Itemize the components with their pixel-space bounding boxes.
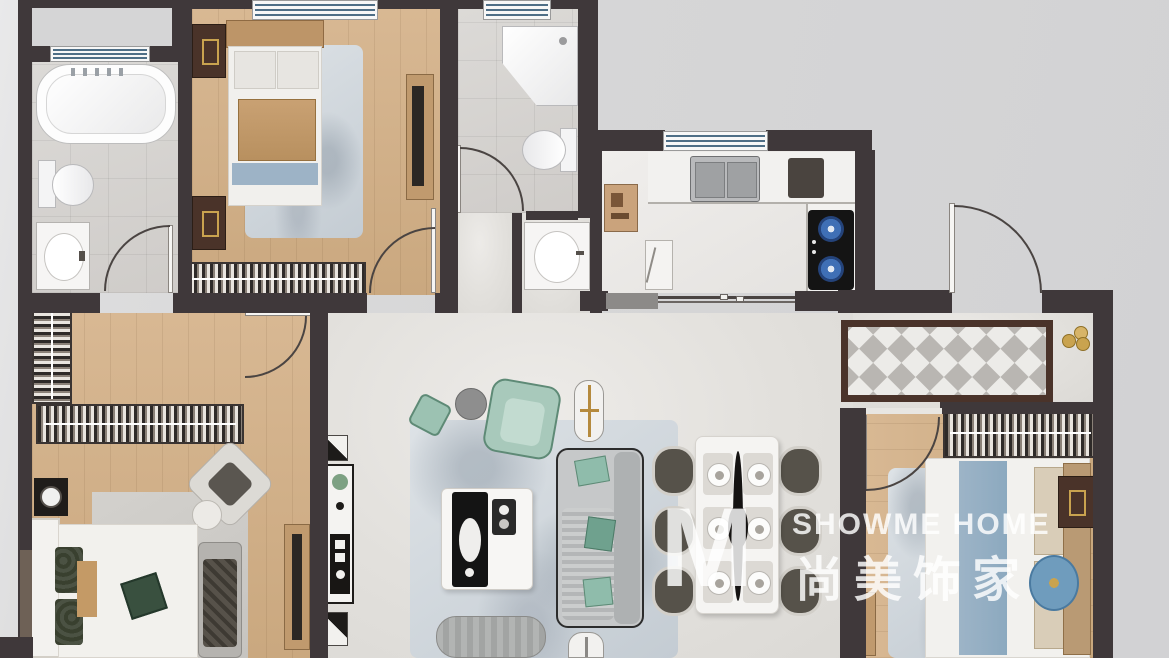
floorplan-canvas: M SHOWME HOME 尚美饰家 (0, 0, 1169, 658)
bed-throw-green (120, 572, 168, 620)
bathtub (36, 64, 176, 144)
burner (818, 256, 844, 282)
decor-dot (336, 502, 344, 510)
gas-hob (808, 210, 854, 290)
side-table-dark (34, 478, 68, 516)
vanity-sink-bathroom1 (36, 222, 90, 290)
nightstand (192, 24, 226, 78)
entry-checker-rug (841, 320, 1053, 402)
balcony-platform (28, 4, 172, 50)
tv-slot (335, 540, 345, 549)
dining-chair (778, 446, 822, 496)
toilet-bowl (52, 164, 94, 206)
checker-pattern (841, 320, 1053, 402)
sink-basin (534, 231, 580, 283)
sink-well (727, 162, 757, 198)
tray-dot (499, 505, 509, 515)
bedside-bench (198, 542, 242, 658)
sofa-pillow-teal (574, 455, 610, 486)
pillow (234, 51, 276, 89)
wall-segment (526, 211, 578, 220)
tv-media-console (326, 464, 354, 604)
wall-segment (0, 637, 33, 658)
bench-cushion (203, 559, 237, 647)
sliding-door-track (658, 301, 795, 303)
speaker-stool (326, 435, 348, 461)
bathtub-faucet (71, 68, 131, 76)
toilet-bowl (522, 130, 566, 170)
window-kitchen (663, 131, 768, 151)
bedroom3-wardrobe (36, 404, 244, 444)
tv-slot (335, 553, 345, 562)
pillow (277, 51, 319, 89)
wall-segment (580, 291, 608, 311)
wall-segment (590, 130, 602, 313)
sliding-door-handle (736, 296, 744, 302)
wall-segment (766, 130, 872, 151)
wall-segment (180, 293, 367, 313)
sofa-pillow-teal (583, 577, 614, 608)
cup-tray (40, 486, 62, 508)
floor-lamp (568, 632, 604, 658)
tv-icon (330, 534, 350, 594)
bed-runner (238, 99, 316, 161)
wall-segment (18, 0, 192, 8)
sink-faucet (576, 251, 584, 255)
window-bedroom1 (252, 0, 378, 20)
wall-segment (940, 402, 1110, 414)
sofa (556, 448, 644, 628)
coffee-table (441, 488, 533, 590)
round-cushion (1029, 555, 1079, 611)
wall-segment-brown (20, 550, 32, 637)
vanity-sink-hall (524, 222, 590, 290)
bedroom1-headboard (226, 20, 324, 48)
hob-knob (812, 250, 816, 254)
wall-segment (18, 0, 32, 295)
bedroom1-bed (228, 46, 322, 206)
wall-segment (838, 290, 875, 313)
tv-dot (336, 570, 345, 579)
watermark-brand-cn: 尚美饰家 (795, 540, 1031, 610)
entry-decor (1062, 326, 1094, 350)
cutting-board (788, 158, 824, 198)
sink-well (695, 162, 725, 198)
table-tray (452, 492, 488, 587)
kitchen-cabinet (645, 240, 673, 290)
wall-segment (178, 0, 192, 295)
ottoman-bench (436, 616, 546, 658)
lamp-arm (580, 409, 599, 412)
armchair-seat (499, 397, 546, 447)
plate (707, 463, 731, 487)
bed-runner (77, 561, 97, 617)
wall-segment (310, 313, 328, 658)
sofa-pillow-teal (584, 516, 616, 552)
wall-segment (435, 293, 458, 313)
floor-lamp (574, 380, 604, 442)
wall-segment (872, 290, 952, 313)
plant-icon (332, 474, 348, 490)
sink-basin (44, 233, 84, 281)
wall-segment-grey (606, 293, 658, 309)
speaker-stool (326, 612, 348, 646)
nightstand (192, 196, 226, 250)
corridor-floor (458, 213, 512, 313)
kitchen-wall-rack (604, 184, 638, 232)
sofa-back (614, 452, 640, 624)
wall-segment (855, 150, 875, 293)
sink-faucet (79, 251, 85, 261)
lamp-pole (585, 637, 588, 657)
sliding-door-handle (720, 294, 728, 300)
rack-item (611, 213, 629, 219)
wall-segment (440, 0, 458, 313)
nightstand (1058, 476, 1094, 528)
wall-segment (32, 46, 52, 62)
armchair-teal (481, 376, 563, 461)
kitchen-sink (690, 156, 760, 202)
bedroom2-wardrobe (943, 410, 1097, 458)
cabinet-detail (646, 247, 657, 282)
watermark-brand-en: SHOWME HOME (792, 508, 1051, 542)
bed-throw-blue (232, 163, 318, 185)
decor-dot (1076, 337, 1090, 351)
tray-vase (459, 518, 481, 562)
bathtub-basin (46, 74, 166, 134)
window-bathroom2 (483, 0, 551, 20)
bedroom3-bed (58, 524, 198, 658)
bedroom3-wardrobe-side (32, 306, 72, 404)
table-tray-small (492, 499, 516, 535)
entry-door-arc (954, 205, 1042, 293)
wall-segment (512, 213, 522, 313)
shower-drain (559, 37, 567, 45)
tray-dot (465, 568, 474, 577)
rack-item (611, 193, 623, 207)
wall-segment (18, 293, 100, 313)
tv-icon (292, 534, 302, 640)
wall-segment (590, 130, 665, 151)
tv-icon (412, 86, 424, 186)
wall-segment (1093, 290, 1113, 658)
door-threshold (866, 408, 942, 414)
pouf (455, 388, 487, 420)
watermark-logo: M (660, 492, 764, 614)
hob-knob (812, 240, 816, 244)
bedroom1-wardrobe (184, 262, 366, 296)
plate (747, 463, 771, 487)
tray-dot (499, 519, 509, 529)
window-bathroom1 (50, 46, 150, 62)
burner (818, 216, 844, 242)
